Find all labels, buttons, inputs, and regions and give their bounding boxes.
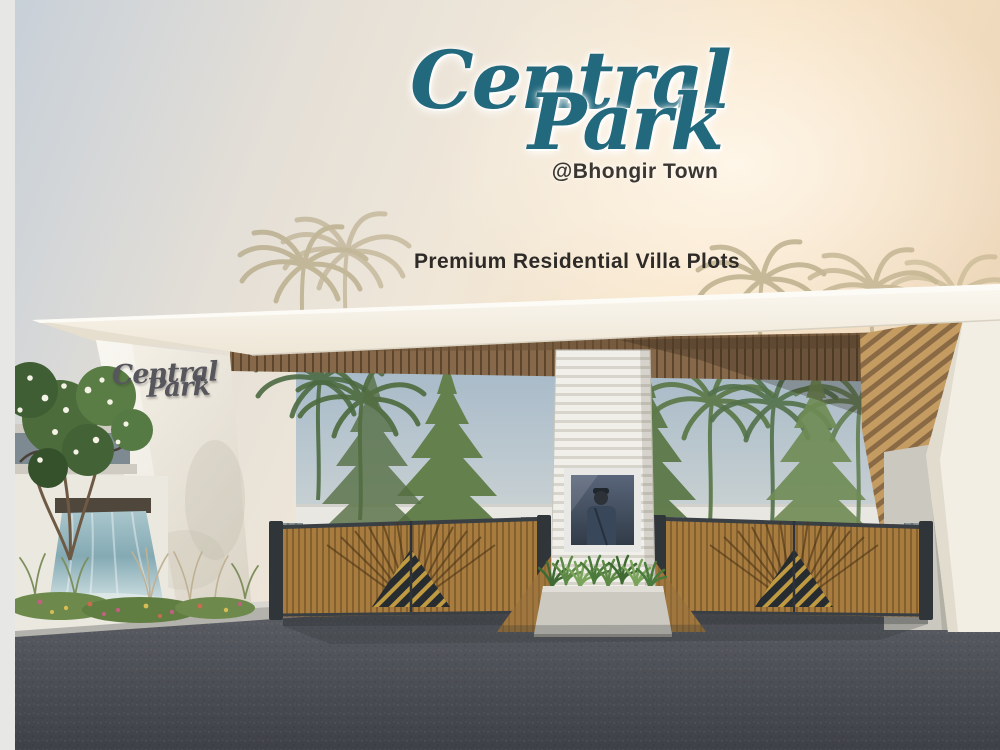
hoarding-render: Central Park @Bhongir Town Premium Resid… xyxy=(0,0,1000,750)
gate-left xyxy=(283,519,539,617)
waterfall xyxy=(49,511,163,602)
gate-post xyxy=(269,521,283,620)
left-border-strip xyxy=(0,0,15,750)
entrance-scene xyxy=(0,0,1000,750)
gate-right xyxy=(666,519,921,617)
tagline: Premium Residential Villa Plots xyxy=(327,250,827,274)
gate-post xyxy=(919,521,933,620)
